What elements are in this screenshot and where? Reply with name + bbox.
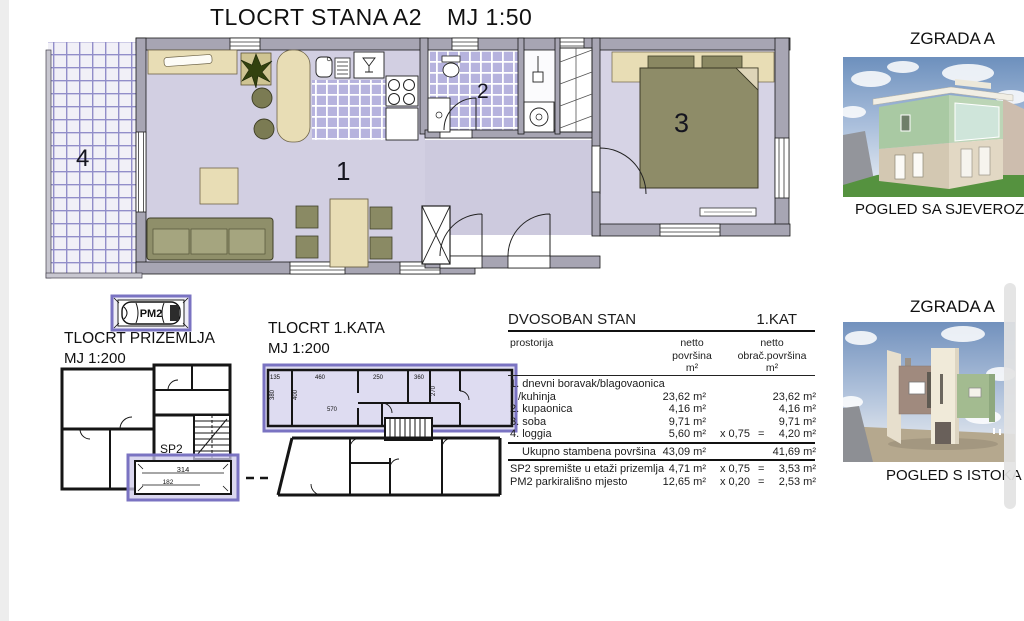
stool [254, 119, 274, 139]
washing-machine-icon [524, 102, 554, 132]
building-render-east [843, 322, 1015, 462]
row-obracun: 23,62 m² [760, 391, 816, 403]
ground-plan-title: TLOCRT PRIZEMLJA [64, 330, 215, 348]
dim-270: 270 [431, 385, 437, 396]
col-obracun: netto obrač.površina m² [712, 337, 832, 375]
coffee-table [200, 168, 238, 204]
dim-135: 135 [270, 375, 281, 381]
shower [428, 98, 450, 132]
extra-name: PM2 parkirališno mjesto [510, 476, 627, 488]
extra-factor: x 0,75 [720, 463, 758, 475]
table-row: 4. loggia 5,60 m² x 0,75 = 4,20 m² [508, 428, 815, 441]
col-obr-l1: netto [712, 337, 832, 350]
table-rule [508, 442, 815, 444]
loggia-railing-left [46, 50, 51, 278]
dim-380: 380 [270, 389, 276, 400]
extra-netto: 4,71 m² [626, 463, 706, 475]
table-row: 3. soba 9,71 m² 9,71 m² [508, 416, 815, 429]
col-obr-l3: m² [712, 362, 832, 375]
loggia-railing-bottom [46, 273, 142, 278]
area-table: DVOSOBAN STAN 1.KAT prostorija netto pov… [508, 310, 815, 496]
row-obracun: 4,16 m² [760, 403, 816, 415]
dim-360: 360 [414, 375, 425, 381]
row-factor: x 0,75 [720, 428, 758, 440]
col-obr-l2: obrač.površina [712, 350, 832, 363]
extra-netto: 12,65 m² [626, 476, 706, 488]
row-name: 3. soba [510, 416, 546, 428]
row-netto: 9,71 m² [626, 416, 706, 428]
room-label-bedroom: 3 [674, 108, 689, 138]
row-name: 2. kupaonica [510, 403, 572, 415]
sp2-dim-depth: 182 [163, 479, 174, 486]
kitchen-island [277, 50, 310, 142]
building [873, 79, 1024, 189]
stool [252, 88, 272, 108]
row-name: 1. dnevni boravak/blagovaonica [510, 378, 665, 390]
dim-570: 570 [327, 407, 338, 413]
first-floor-scale: MJ 1:200 [268, 340, 330, 357]
ground-floor-plan: 314 182 SP2 [50, 363, 270, 508]
stairs [194, 415, 230, 459]
total-netto: 43,09 m² [626, 446, 706, 458]
dining-table [330, 199, 368, 267]
extra-obracun: 3,53 m² [760, 463, 816, 475]
loggia-window [136, 132, 146, 212]
row-obracun: 9,71 m² [760, 416, 816, 428]
row-netto: 5,60 m² [626, 428, 706, 440]
table-row: /kuhinja 23,62 m² 23,62 m² [508, 391, 815, 404]
main-floor-plan: 1 2 3 4 [40, 28, 795, 290]
pm2-label: PM2 [140, 308, 163, 320]
sheet-scale: MJ 1:50 [447, 4, 532, 31]
room-label-bath: 2 [477, 80, 489, 103]
table-extra-row: PM2 parkirališno mjesto 12,65 m² x 0,20 … [508, 476, 815, 489]
sheet-title: TLOCRT STANA A2 [210, 4, 422, 31]
table-column-headers: prostorija netto površina m² netto obrač… [508, 335, 815, 376]
kitchen-tiles [312, 80, 388, 140]
sp2-label: SP2 [160, 442, 183, 456]
table-title: DVOSOBAN STAN [508, 311, 636, 328]
table-row: 1. dnevni boravak/blagovaonica [508, 378, 815, 391]
row-name2: /kuhinja [518, 391, 556, 403]
room-label-living: 1 [336, 156, 350, 186]
drainer-icon [335, 58, 350, 78]
building-title-east: ZGRADA A [910, 297, 995, 317]
table-extra-row: SP2 spremište u etaži prizemlja 4,71 m² … [508, 463, 815, 476]
building-caption-east: POGLED S ISTOKA [886, 467, 1022, 484]
sp2-dim-width: 314 [177, 465, 190, 474]
plant-icon [241, 53, 272, 88]
building-render-northwest [843, 57, 1024, 197]
bar-martini-icon [354, 52, 384, 78]
col-room: prostorija [510, 337, 553, 349]
sofa [147, 218, 273, 260]
building-title-north: ZGRADA A [910, 29, 995, 49]
row-netto: 4,16 m² [626, 403, 706, 415]
row-name: 4. loggia [510, 428, 552, 440]
table-total-row: Ukupno stambena površina 43,09 m² 41,69 … [508, 446, 815, 459]
room-label-loggia: 4 [76, 145, 89, 172]
table-title-row: DVOSOBAN STAN 1.KAT [508, 310, 815, 332]
stove-icon [386, 76, 418, 140]
row-obracun: 4,20 m² [760, 428, 816, 440]
row-netto: 23,62 m² [626, 391, 706, 403]
wardrobe [560, 48, 592, 132]
building-caption-north: POGLED SA SJEVEROZAPADA [855, 201, 1024, 218]
pm2-parking-diagram: PM2 [110, 294, 192, 332]
dim-400: 400 [293, 389, 299, 400]
table-floor: 1.KAT [756, 311, 797, 328]
sink-icon [316, 57, 332, 77]
dim-250: 250 [373, 375, 384, 381]
scrollbar-strip[interactable] [1004, 283, 1016, 509]
floorplan-sheet: { "page": { "title": "TLOCRT STANA A2", … [0, 0, 1024, 621]
dim-460: 460 [315, 375, 326, 381]
table-rule [508, 459, 815, 461]
console-shelf [700, 208, 756, 216]
extra-factor: x 0,20 [720, 476, 758, 488]
first-floor-title: TLOCRT 1.KATA [268, 320, 385, 338]
page-edge-strip [0, 0, 9, 621]
first-floor-plan: 135 460 250 360 380 400 570 270 [262, 363, 520, 505]
sp2-storage: 314 182 [128, 455, 238, 500]
table-row: 2. kupaonica 4,16 m² 4,16 m² [508, 403, 815, 416]
extra-obracun: 2,53 m² [760, 476, 816, 488]
bedroom-window [775, 138, 789, 198]
loggia-tiles [48, 42, 140, 278]
toilet-icon [442, 56, 460, 77]
total-obracun: 41,69 m² [760, 446, 816, 458]
